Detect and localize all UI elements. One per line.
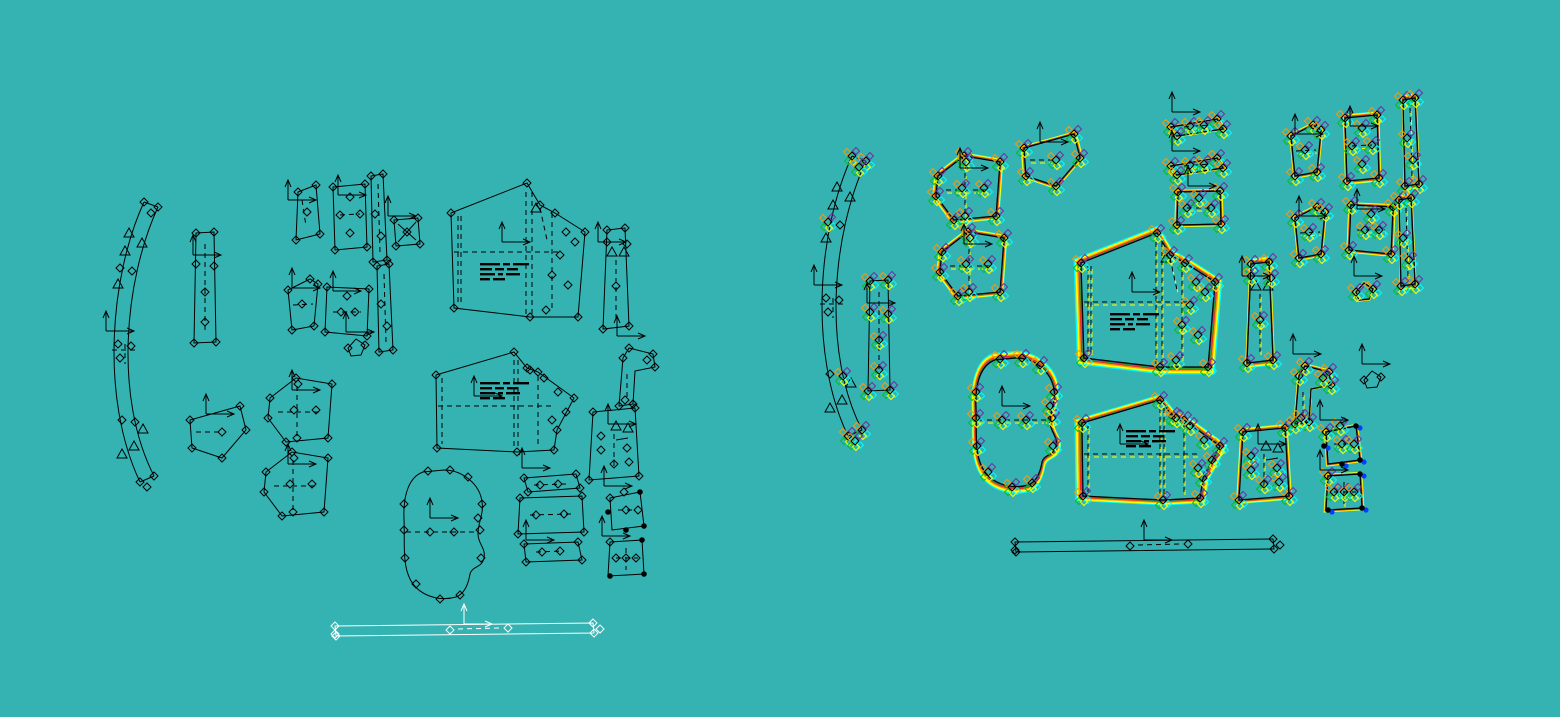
pattern-cad-viewport — [0, 0, 1560, 717]
piece-label-text — [506, 273, 520, 275]
piece-label-text — [503, 263, 510, 265]
piece-label-text — [507, 387, 518, 389]
piece-label-text — [507, 268, 518, 270]
piece-label-text — [1153, 435, 1164, 437]
piece-label-text — [1110, 318, 1122, 320]
piece-label-text — [1126, 445, 1136, 447]
piece-label-text — [1141, 435, 1150, 437]
piece-label-text — [1137, 318, 1148, 320]
grade-point-dot — [1359, 505, 1365, 511]
piece-label-text — [493, 278, 505, 280]
piece-label-text — [1110, 323, 1125, 325]
piece-label-text — [1159, 430, 1175, 432]
piece-label-text — [480, 387, 492, 389]
piece-label-text — [1136, 323, 1150, 325]
grade-point-dot — [1325, 507, 1331, 513]
piece-label-text — [480, 278, 490, 280]
piece-label-text — [493, 397, 505, 399]
grade-point-dot — [1321, 443, 1327, 449]
piece-label-text — [1143, 313, 1159, 315]
pattern-drawing-canvas — [0, 0, 1560, 717]
piece-label-text — [1110, 328, 1120, 330]
piece-label-text — [506, 392, 520, 394]
grade-point-dot — [1357, 471, 1363, 477]
grade-point-dot — [605, 509, 611, 515]
piece-label-text — [480, 268, 492, 270]
piece-label-text — [513, 382, 529, 384]
piece-label-text — [1152, 440, 1166, 442]
piece-label-text — [1125, 318, 1134, 320]
grade-point-dot — [623, 527, 629, 533]
piece-label-text — [480, 392, 495, 394]
grade-point-dot — [1357, 457, 1363, 463]
piece-label-text — [513, 263, 529, 265]
grade-point-dot — [639, 537, 645, 543]
piece-label-text — [480, 382, 500, 384]
piece-label-text — [1149, 430, 1156, 432]
piece-label-text — [1133, 313, 1140, 315]
piece-label-text — [495, 387, 504, 389]
piece-label-text — [1139, 445, 1151, 447]
grade-point-dot — [1353, 423, 1359, 429]
canvas-background — [0, 0, 1560, 717]
grade-point-dot — [641, 523, 647, 529]
piece-label-text — [480, 273, 495, 275]
piece-label-text — [498, 392, 503, 394]
piece-label-text — [1110, 313, 1130, 315]
piece-label-text — [1123, 328, 1135, 330]
drawing-area[interactable] — [0, 0, 1560, 717]
piece-label-text — [1126, 440, 1141, 442]
piece-label-text — [1128, 323, 1133, 325]
piece-label-text — [1144, 440, 1149, 442]
piece-label-text — [503, 382, 510, 384]
piece-label-text — [480, 263, 500, 265]
grade-point-dot — [607, 573, 613, 579]
grade-point-dot — [641, 571, 647, 577]
piece-label-text — [498, 273, 503, 275]
piece-label-text — [1126, 435, 1138, 437]
piece-label-text — [480, 397, 490, 399]
piece-label-text — [495, 268, 504, 270]
grade-point-dot — [1339, 461, 1345, 467]
grade-point-dot — [637, 489, 643, 495]
piece-label-text — [1126, 430, 1146, 432]
